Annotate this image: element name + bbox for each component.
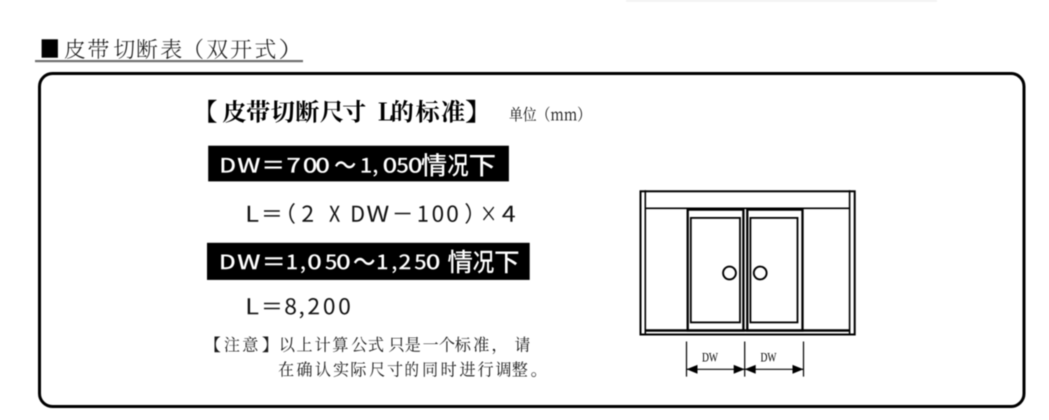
svg-text:DW: DW xyxy=(702,350,719,365)
svg-text:DW: DW xyxy=(761,350,778,365)
